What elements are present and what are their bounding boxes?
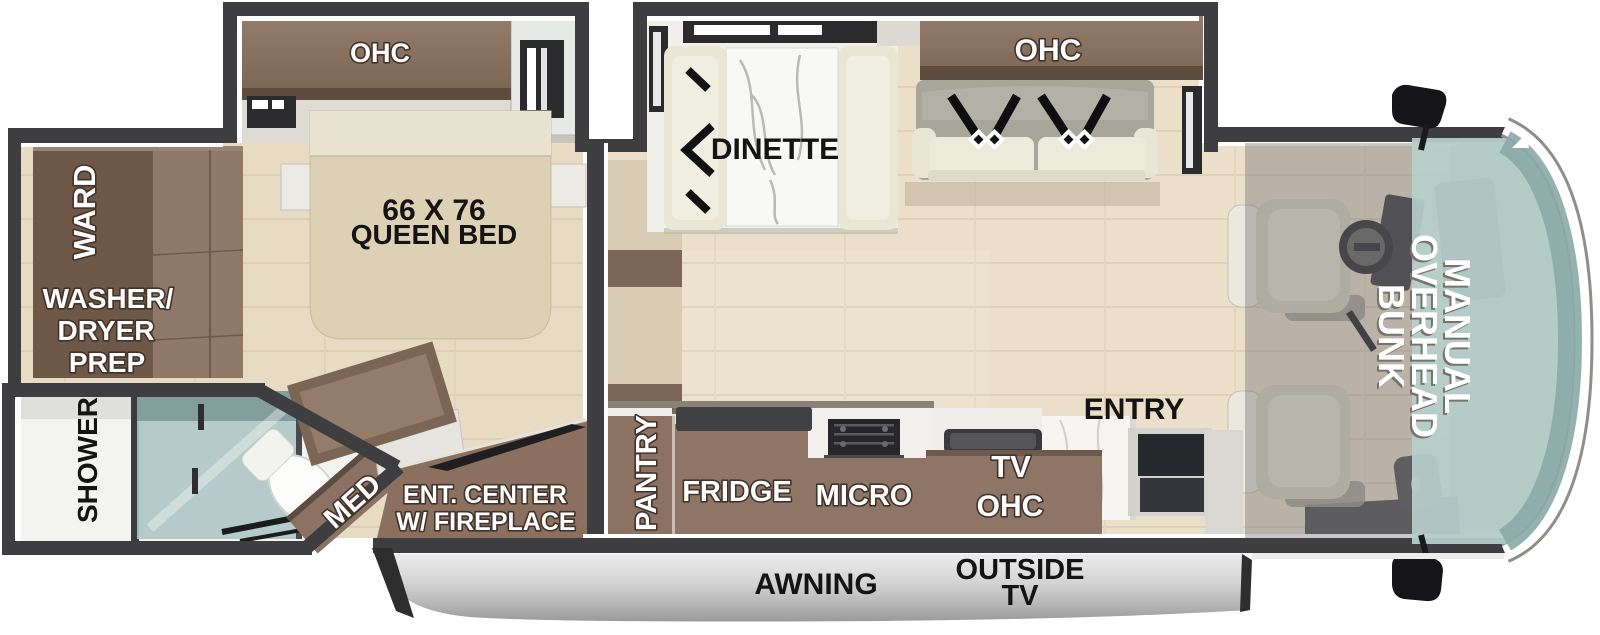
svg-text:OHC: OHC — [977, 490, 1044, 523]
svg-text:WARD: WARD — [67, 165, 102, 260]
svg-text:TV: TV — [991, 449, 1031, 484]
svg-text:TV: TV — [1001, 580, 1039, 612]
svg-text:DRYER: DRYER — [58, 315, 155, 346]
svg-text:PANTRY: PANTRY — [631, 415, 663, 531]
svg-text:PREP: PREP — [69, 347, 145, 378]
svg-text:ENT. CENTER: ENT. CENTER — [403, 481, 567, 509]
svg-text:WASHER/: WASHER/ — [43, 283, 174, 314]
svg-text:SHOWER: SHOWER — [72, 397, 103, 523]
svg-text:W/ FIREPLACE: W/ FIREPLACE — [396, 508, 575, 536]
svg-text:MICRO: MICRO — [816, 480, 913, 512]
svg-text:FRIDGE: FRIDGE — [682, 476, 792, 508]
svg-text:OHC: OHC — [350, 38, 410, 68]
svg-text:QUEEN BED: QUEEN BED — [351, 219, 517, 250]
svg-text:BUNK: BUNK — [1371, 284, 1412, 388]
svg-text:ENTRY: ENTRY — [1084, 393, 1185, 426]
svg-text:DINETTE: DINETTE — [711, 133, 839, 166]
svg-text:OHC: OHC — [1015, 34, 1082, 67]
svg-text:AWNING: AWNING — [754, 568, 877, 601]
